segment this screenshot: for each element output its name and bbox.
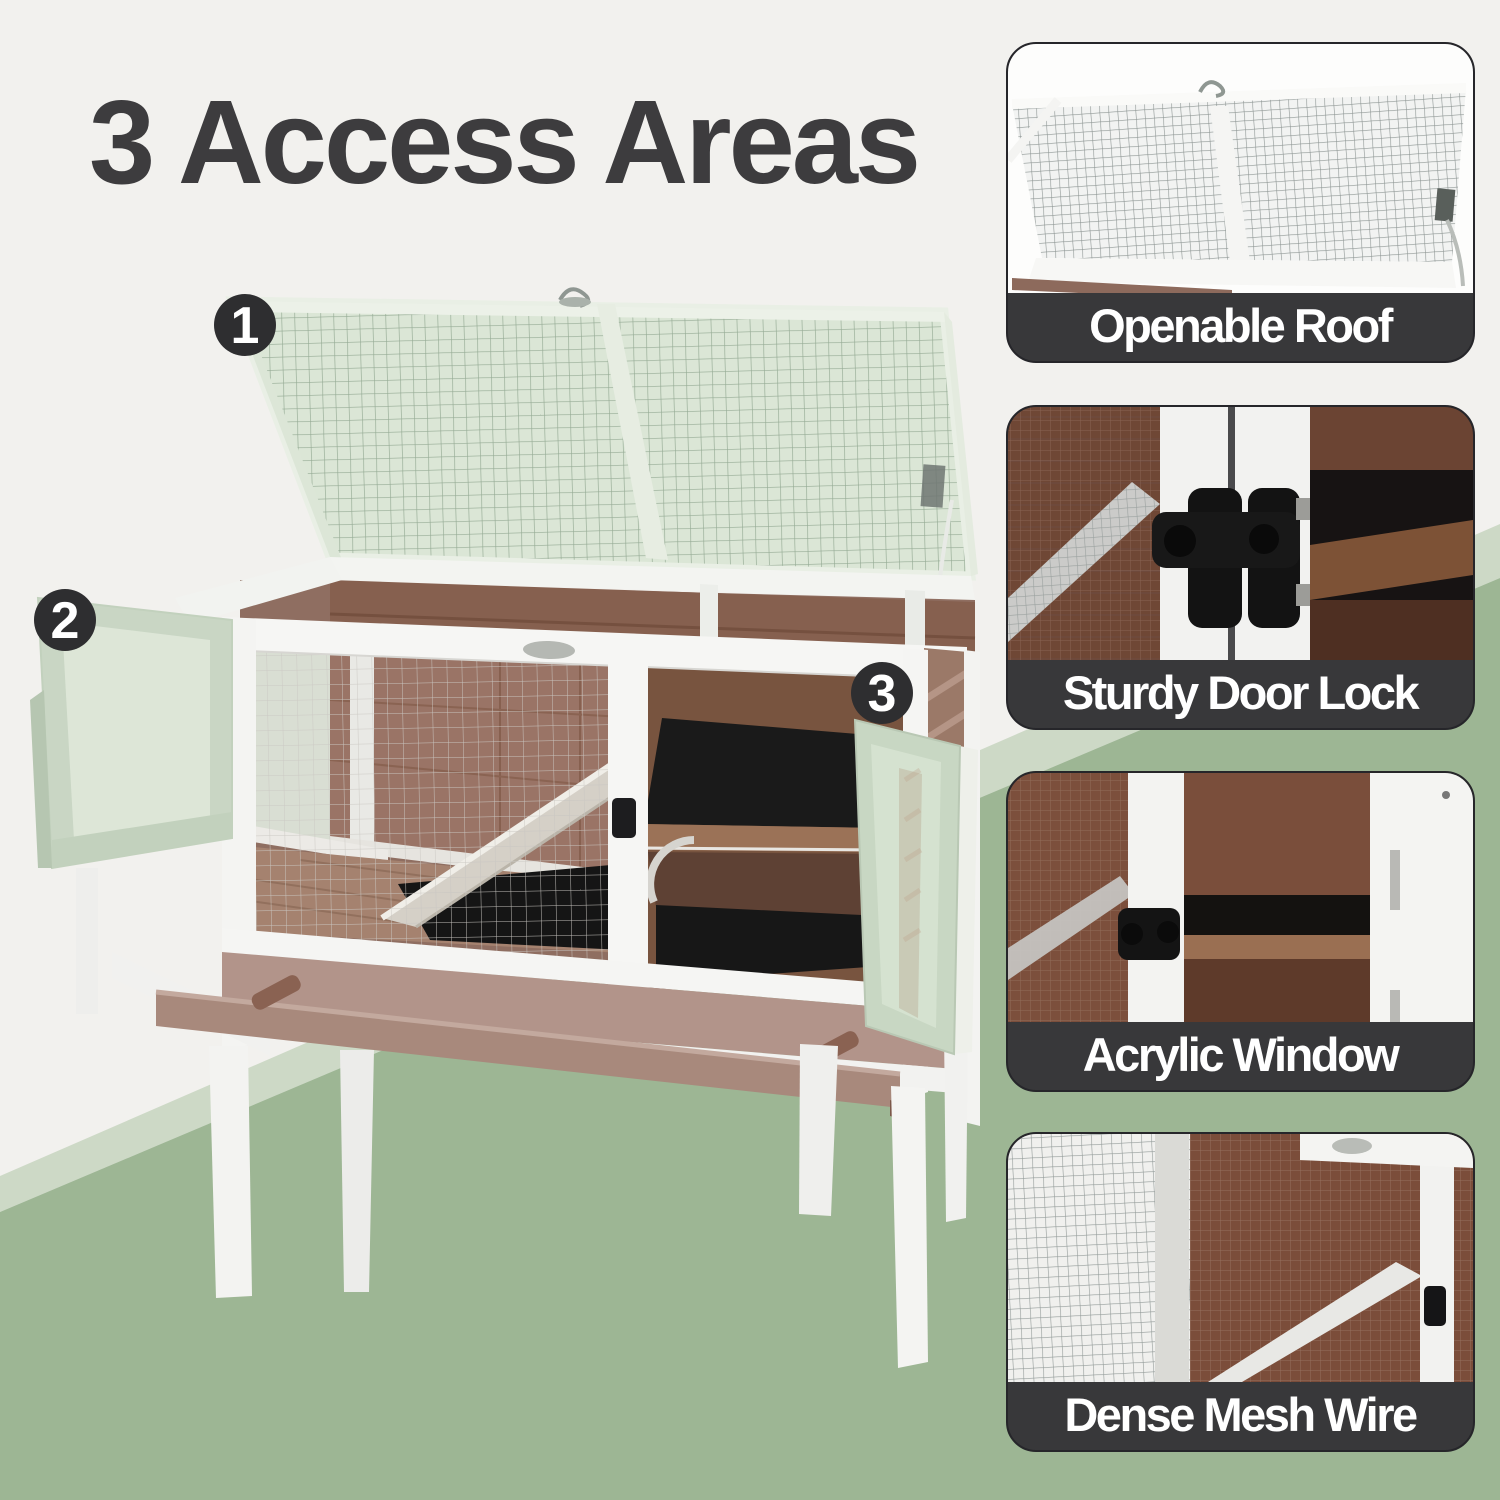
svg-text:3 Access Areas: 3 Access Areas (89, 76, 918, 209)
svg-text:Sturdy Door Lock: Sturdy Door Lock (1063, 666, 1421, 719)
svg-text:1: 1 (231, 297, 260, 355)
svg-text:2: 2 (51, 592, 80, 650)
svg-text:Dense Mesh Wire: Dense Mesh Wire (1064, 1388, 1417, 1441)
svg-text:Acrylic Window: Acrylic Window (1083, 1028, 1400, 1081)
svg-text:Openable Roof: Openable Roof (1089, 299, 1394, 352)
svg-text:3: 3 (868, 665, 897, 723)
